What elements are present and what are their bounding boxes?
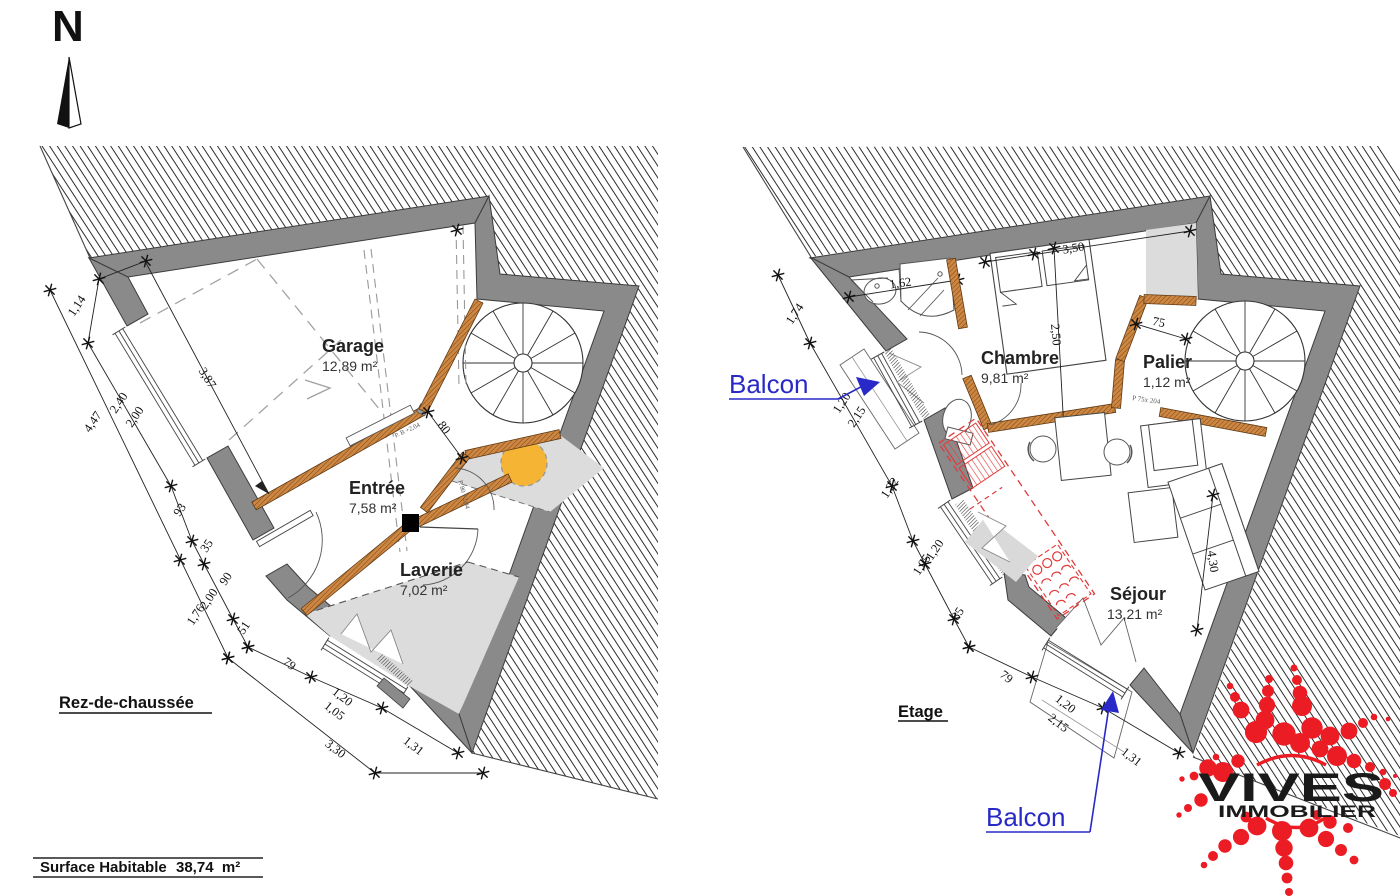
svg-text:Surface Habitable: Surface Habitable (40, 859, 167, 876)
svg-text:7,58 m²: 7,58 m² (349, 500, 397, 516)
svg-text:2,50: 2,50 (1048, 323, 1064, 346)
svg-text:Chambre: Chambre (981, 348, 1059, 368)
svg-text:7,02 m²: 7,02 m² (400, 582, 448, 598)
svg-text:Balcon: Balcon (729, 369, 809, 399)
svg-text:N: N (52, 2, 84, 51)
svg-text:Rez-de-chaussée: Rez-de-chaussée (59, 694, 194, 712)
svg-text:12,89 m²: 12,89 m² (322, 358, 378, 374)
svg-text:Entrée: Entrée (349, 478, 405, 498)
svg-text:Palier: Palier (1143, 352, 1192, 372)
svg-text:9,81 m²: 9,81 m² (981, 370, 1029, 386)
svg-text:13,21 m²: 13,21 m² (1107, 606, 1163, 622)
svg-text:Balcon: Balcon (986, 802, 1066, 832)
svg-text:Etage: Etage (898, 703, 943, 721)
svg-text:1,12 m²: 1,12 m² (1143, 374, 1191, 390)
svg-text:Garage: Garage (322, 336, 384, 356)
svg-text:IMMOBILIER: IMMOBILIER (1218, 802, 1376, 821)
svg-text:Laverie: Laverie (400, 560, 463, 580)
svg-text:38,74 m²: 38,74 m² (176, 859, 240, 876)
svg-text:Séjour: Séjour (1110, 584, 1166, 604)
